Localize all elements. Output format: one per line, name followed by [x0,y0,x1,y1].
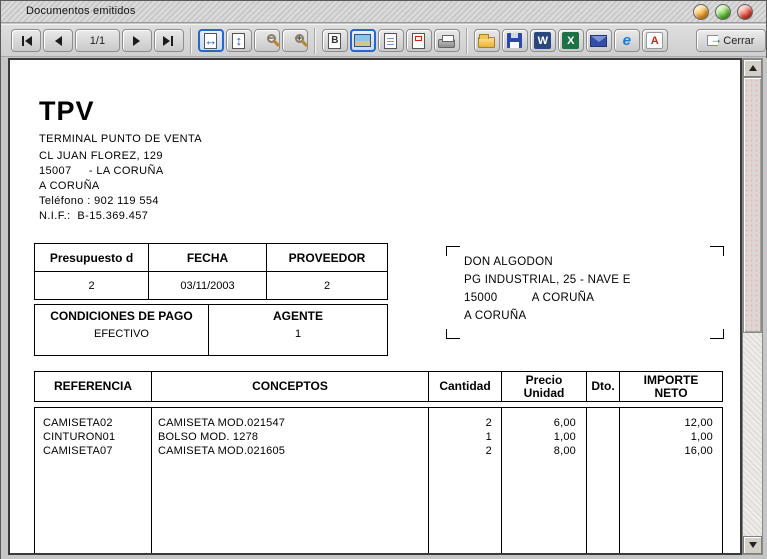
customer-address-block: DON ALGODON PG INDUSTRIAL, 25 - NAVE E 1… [446,246,724,339]
next-page-icon [133,36,140,46]
item-concepto: BOLSO MOD. 1278 [151,430,428,444]
item-importe: 16,00 [619,444,721,458]
first-page-button[interactable] [11,29,41,52]
item-referencia: CAMISETA02 [34,416,151,430]
toolbar-separator [466,28,468,54]
item-precio: 1,00 [501,430,586,444]
scroll-up-button[interactable] [743,59,762,77]
export-word-button[interactable]: W [530,29,556,52]
bracket-top-left [446,246,460,256]
draft-view-icon: B [328,33,341,49]
items-table-header: REFERENCIA CONCEPTOS Cantidad Precio Uni… [34,371,723,402]
company-phone: Teléfono : 902 119 554 [39,195,159,207]
col-referencia: REFERENCIA [35,372,152,401]
exit-door-icon: → [707,35,718,46]
next-page-button[interactable] [122,29,152,52]
customer-address-2: 15000 A CORUÑA [464,289,631,307]
title-bar: Documentos emitidos [1,1,766,23]
print-icon [438,39,455,48]
val-proveedor: 2 [267,272,387,299]
cerrar-label: Cerrar [723,35,754,47]
toolbar-separator [190,28,192,54]
col-precio-unidad: Precio Unidad [502,372,587,401]
print-button[interactable] [434,29,460,52]
text-view-icon [384,33,397,49]
customer-address-3: A CORUÑA [464,307,631,325]
bracket-bottom-left [446,329,460,339]
item-concepto: CAMISETA MOD.021547 [151,416,428,430]
open-folder-icon [478,37,495,48]
fit-width-icon: ↔ [204,33,217,49]
save-button[interactable] [502,29,528,52]
item-referencia: CINTURON01 [34,430,151,444]
col-conceptos: CONCEPTOS [152,372,429,401]
toolbar-separator [314,28,316,54]
send-email-button[interactable] [586,29,612,52]
val-agente: 1 [209,328,387,340]
export-pdf-button[interactable]: A [642,29,668,52]
export-excel-button[interactable]: X [558,29,584,52]
val-presupuesto: 2 [35,272,149,299]
previous-page-button[interactable] [43,29,73,52]
col-importe-neto: IMPORTE NETO [620,372,722,401]
col-dto: Dto. [587,372,620,401]
company-address-1: CL JUAN FLOREZ, 129 [39,150,163,162]
col-cantidad: Cantidad [429,372,502,401]
item-concepto: CAMISETA MOD.021605 [151,444,428,458]
item-row: CINTURON01 BOLSO MOD. 1278 1 1,00 1,00 [34,430,723,444]
window-controls [693,4,753,20]
col-fecha: FECHA [149,244,267,272]
pdf-icon: A [646,32,663,49]
customer-name: DON ALGODON [464,253,631,271]
previous-page-icon [55,36,62,46]
col-proveedor: PROVEEDOR [267,244,387,272]
close-button[interactable] [737,4,753,20]
zoom-out-button[interactable]: − [254,29,280,52]
item-row: CAMISETA02 CAMISETA MOD.021547 2 6,00 12… [34,416,723,430]
item-row: CAMISETA07 CAMISETA MOD.021605 2 8,00 16… [34,444,723,458]
item-referencia: CAMISETA07 [34,444,151,458]
report-view-icon [412,33,425,49]
col-condiciones-pago: CONDICIONES DE PAGO [35,309,208,323]
item-cantidad: 2 [428,416,501,430]
item-cantidad: 1 [428,430,501,444]
first-page-icon [22,36,24,46]
last-page-button[interactable] [154,29,184,52]
item-precio: 8,00 [501,444,586,458]
payment-info-table: CONDICIONES DE PAGO EFECTIVO AGENTE 1 [34,304,388,356]
report-view-button[interactable] [406,29,432,52]
minimize-button[interactable] [693,4,709,20]
vertical-scrollbar[interactable] [742,58,763,555]
bracket-bottom-right [710,329,724,339]
item-importe: 12,00 [619,416,721,430]
save-icon [507,33,522,48]
item-precio: 6,00 [501,416,586,430]
col-agente: AGENTE [209,309,387,323]
customer-address-1: PG INDUSTRIAL, 25 - NAVE E [464,271,631,289]
budget-info-table: Presupuesto d FECHA PROVEEDOR 2 03/11/20… [34,243,388,300]
fit-height-button[interactable]: ↕ [226,29,252,52]
excel-icon: X [562,32,579,49]
item-cantidad: 2 [428,444,501,458]
item-dto [586,430,619,444]
item-importe: 1,00 [619,430,721,444]
draft-view-button[interactable]: B [322,29,348,52]
graphic-view-icon [354,34,371,47]
cerrar-button[interactable]: → Cerrar [696,29,766,52]
fit-width-button[interactable]: ↔ [198,29,224,52]
app-window: { "window": { "title": "Documentos emiti… [0,0,767,559]
preview-area: TPV TERMINAL PUNTO DE VENTA CL JUAN FLOR… [8,58,742,555]
export-html-button[interactable]: e [614,29,640,52]
zoom-in-button[interactable]: + [282,29,308,52]
company-address-2: 15007 - LA CORUÑA [39,165,164,177]
arrow-down-icon [749,542,757,548]
internet-explorer-icon: e [623,33,631,48]
company-subtitle: TERMINAL PUNTO DE VENTA [39,133,202,145]
word-icon: W [534,32,551,49]
arrow-up-icon [749,65,757,71]
val-condiciones-pago: EFECTIVO [35,328,208,340]
email-icon [590,35,607,47]
maximize-button[interactable] [715,4,731,20]
company-nif: N.I.F.: B-15.369.457 [39,210,148,222]
page-indicator: 1/1 [75,29,120,52]
text-view-button[interactable] [378,29,404,52]
open-button[interactable] [474,29,500,52]
window-frame-bottom [1,555,767,559]
company-name: TPV [39,96,95,127]
graphic-view-button[interactable] [350,29,376,52]
item-dto [586,444,619,458]
bracket-top-right [710,246,724,256]
col-presupuesto: Presupuesto d [35,244,149,272]
fit-height-icon: ↕ [232,33,245,49]
items-table-body: CAMISETA02 CAMISETA MOD.021547 2 6,00 12… [34,407,723,553]
scroll-down-button[interactable] [743,536,762,554]
company-address-3: A CORUÑA [39,180,100,192]
item-dto [586,416,619,430]
scrollbar-thumb[interactable] [743,77,762,333]
toolbar: 1/1 ↔ ↕ − + B W [1,24,766,57]
val-fecha: 03/11/2003 [149,272,267,299]
last-page-icon [163,36,170,46]
window-title: Documentos emitidos [26,5,136,17]
items-rows: CAMISETA02 CAMISETA MOD.021547 2 6,00 12… [34,416,723,458]
document-page: TPV TERMINAL PUNTO DE VENTA CL JUAN FLOR… [10,60,740,553]
